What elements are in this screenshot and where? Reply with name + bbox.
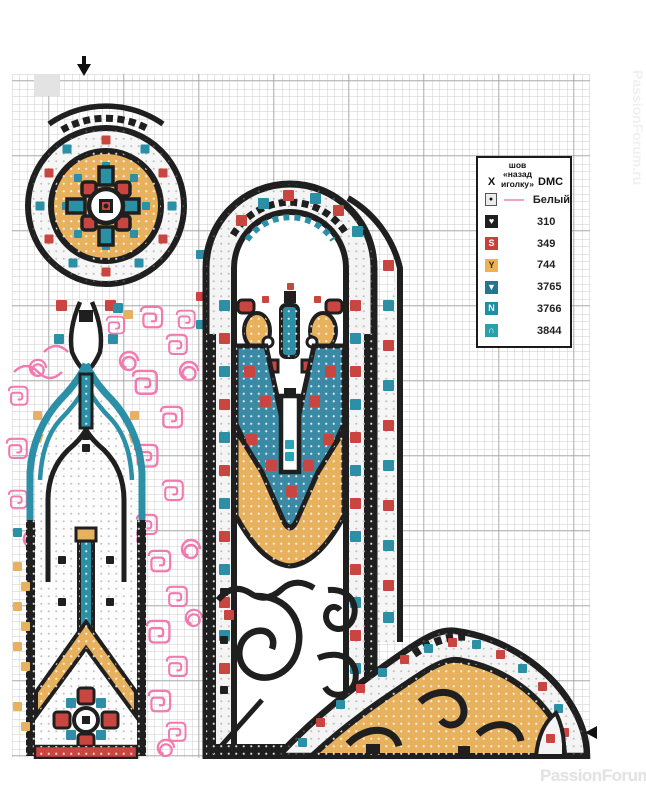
stitch-pattern-svg (0, 0, 646, 800)
pattern-root (0, 0, 646, 800)
dmc-code: 3766 (535, 303, 561, 315)
dmc-code: 310 (535, 216, 555, 228)
watermark-top-right: PassionForum.ru (630, 70, 646, 185)
dmc-code: 349 (535, 238, 555, 250)
stitch-symbol-heart: ♥ (485, 215, 498, 228)
stitch-symbol-triangle: ▼ (485, 281, 498, 294)
stitch-symbol-dot: ● (485, 193, 497, 206)
legend-row-3766: N 3766 (484, 298, 570, 320)
dmc-code: Белый (531, 194, 570, 206)
stitch-symbol-n: N (485, 302, 498, 315)
stitch-symbol-arch: ∩ (485, 324, 498, 337)
stitch-symbol-y: Y (485, 259, 498, 272)
legend-row-310: ♥ 310 (484, 211, 570, 233)
legend-row-744: Y 744 (484, 254, 570, 276)
watermark-bottom-right: PassionForum.ru (540, 766, 646, 786)
backstitch-sample (497, 199, 531, 201)
legend-col-symbol: X (484, 176, 499, 189)
color-legend: X шов «назад иголку» DMC ● Белый ♥ 310 S… (476, 156, 572, 348)
legend-row-3765: ▼ 3765 (484, 276, 570, 298)
legend-col-dmc: DMC (536, 176, 563, 189)
backstitch-line (504, 199, 524, 201)
stitch-symbol-s: S (485, 237, 498, 250)
cross-stitch-chart-page: X шов «назад иголку» DMC ● Белый ♥ 310 S… (0, 0, 646, 800)
dmc-code: 3765 (535, 281, 561, 293)
legend-row-349: S 349 (484, 233, 570, 255)
legend-header: X шов «назад иголку» DMC (484, 161, 570, 189)
dmc-code: 744 (535, 259, 555, 271)
legend-col-backstitch: шов «назад иголку» (499, 161, 536, 189)
dmc-code: 3844 (535, 325, 561, 337)
legend-row-3844: ∩ 3844 (484, 320, 570, 342)
legend-row-white: ● Белый (484, 189, 570, 211)
